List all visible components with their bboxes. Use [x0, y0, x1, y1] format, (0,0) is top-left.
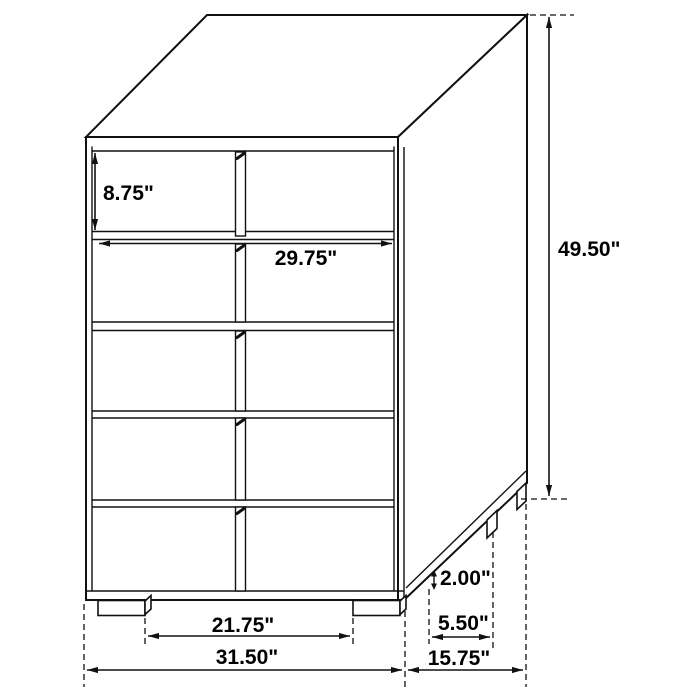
- arrow-down: [431, 584, 437, 591]
- dimension-leg-height: 2.00": [431, 567, 491, 590]
- leg-height-label: 2.00": [440, 567, 491, 590]
- drawer-handle: [236, 507, 246, 591]
- drawer-width-label: 29.75": [275, 247, 338, 270]
- dimension-front-leg-spacing: 21.75": [145, 614, 353, 645]
- drawer-handle: [236, 418, 246, 500]
- chest-dimension-diagram: 49.50" 8.75" 29.75" 2.00" 5.50" 21.75" 3…: [0, 0, 700, 700]
- drawer-handle: [236, 152, 246, 236]
- drawer-handle: [236, 244, 246, 322]
- overall-width-label: 31.50": [216, 646, 279, 669]
- drawer-handles: [236, 152, 246, 591]
- drawer-handle: [236, 331, 246, 411]
- overall-depth-label: 15.75": [428, 647, 491, 670]
- dimension-overall-height: 49.50": [521, 15, 621, 499]
- top-drawer-height-label: 8.75": [103, 182, 154, 205]
- side-leg-spacing-label: 5.50": [438, 612, 489, 635]
- front-leg-spacing-label: 21.75": [212, 614, 275, 637]
- dimension-diagram-canvas: 49.50" 8.75" 29.75" 2.00" 5.50" 21.75" 3…: [0, 0, 700, 700]
- overall-height-label: 49.50": [558, 238, 621, 261]
